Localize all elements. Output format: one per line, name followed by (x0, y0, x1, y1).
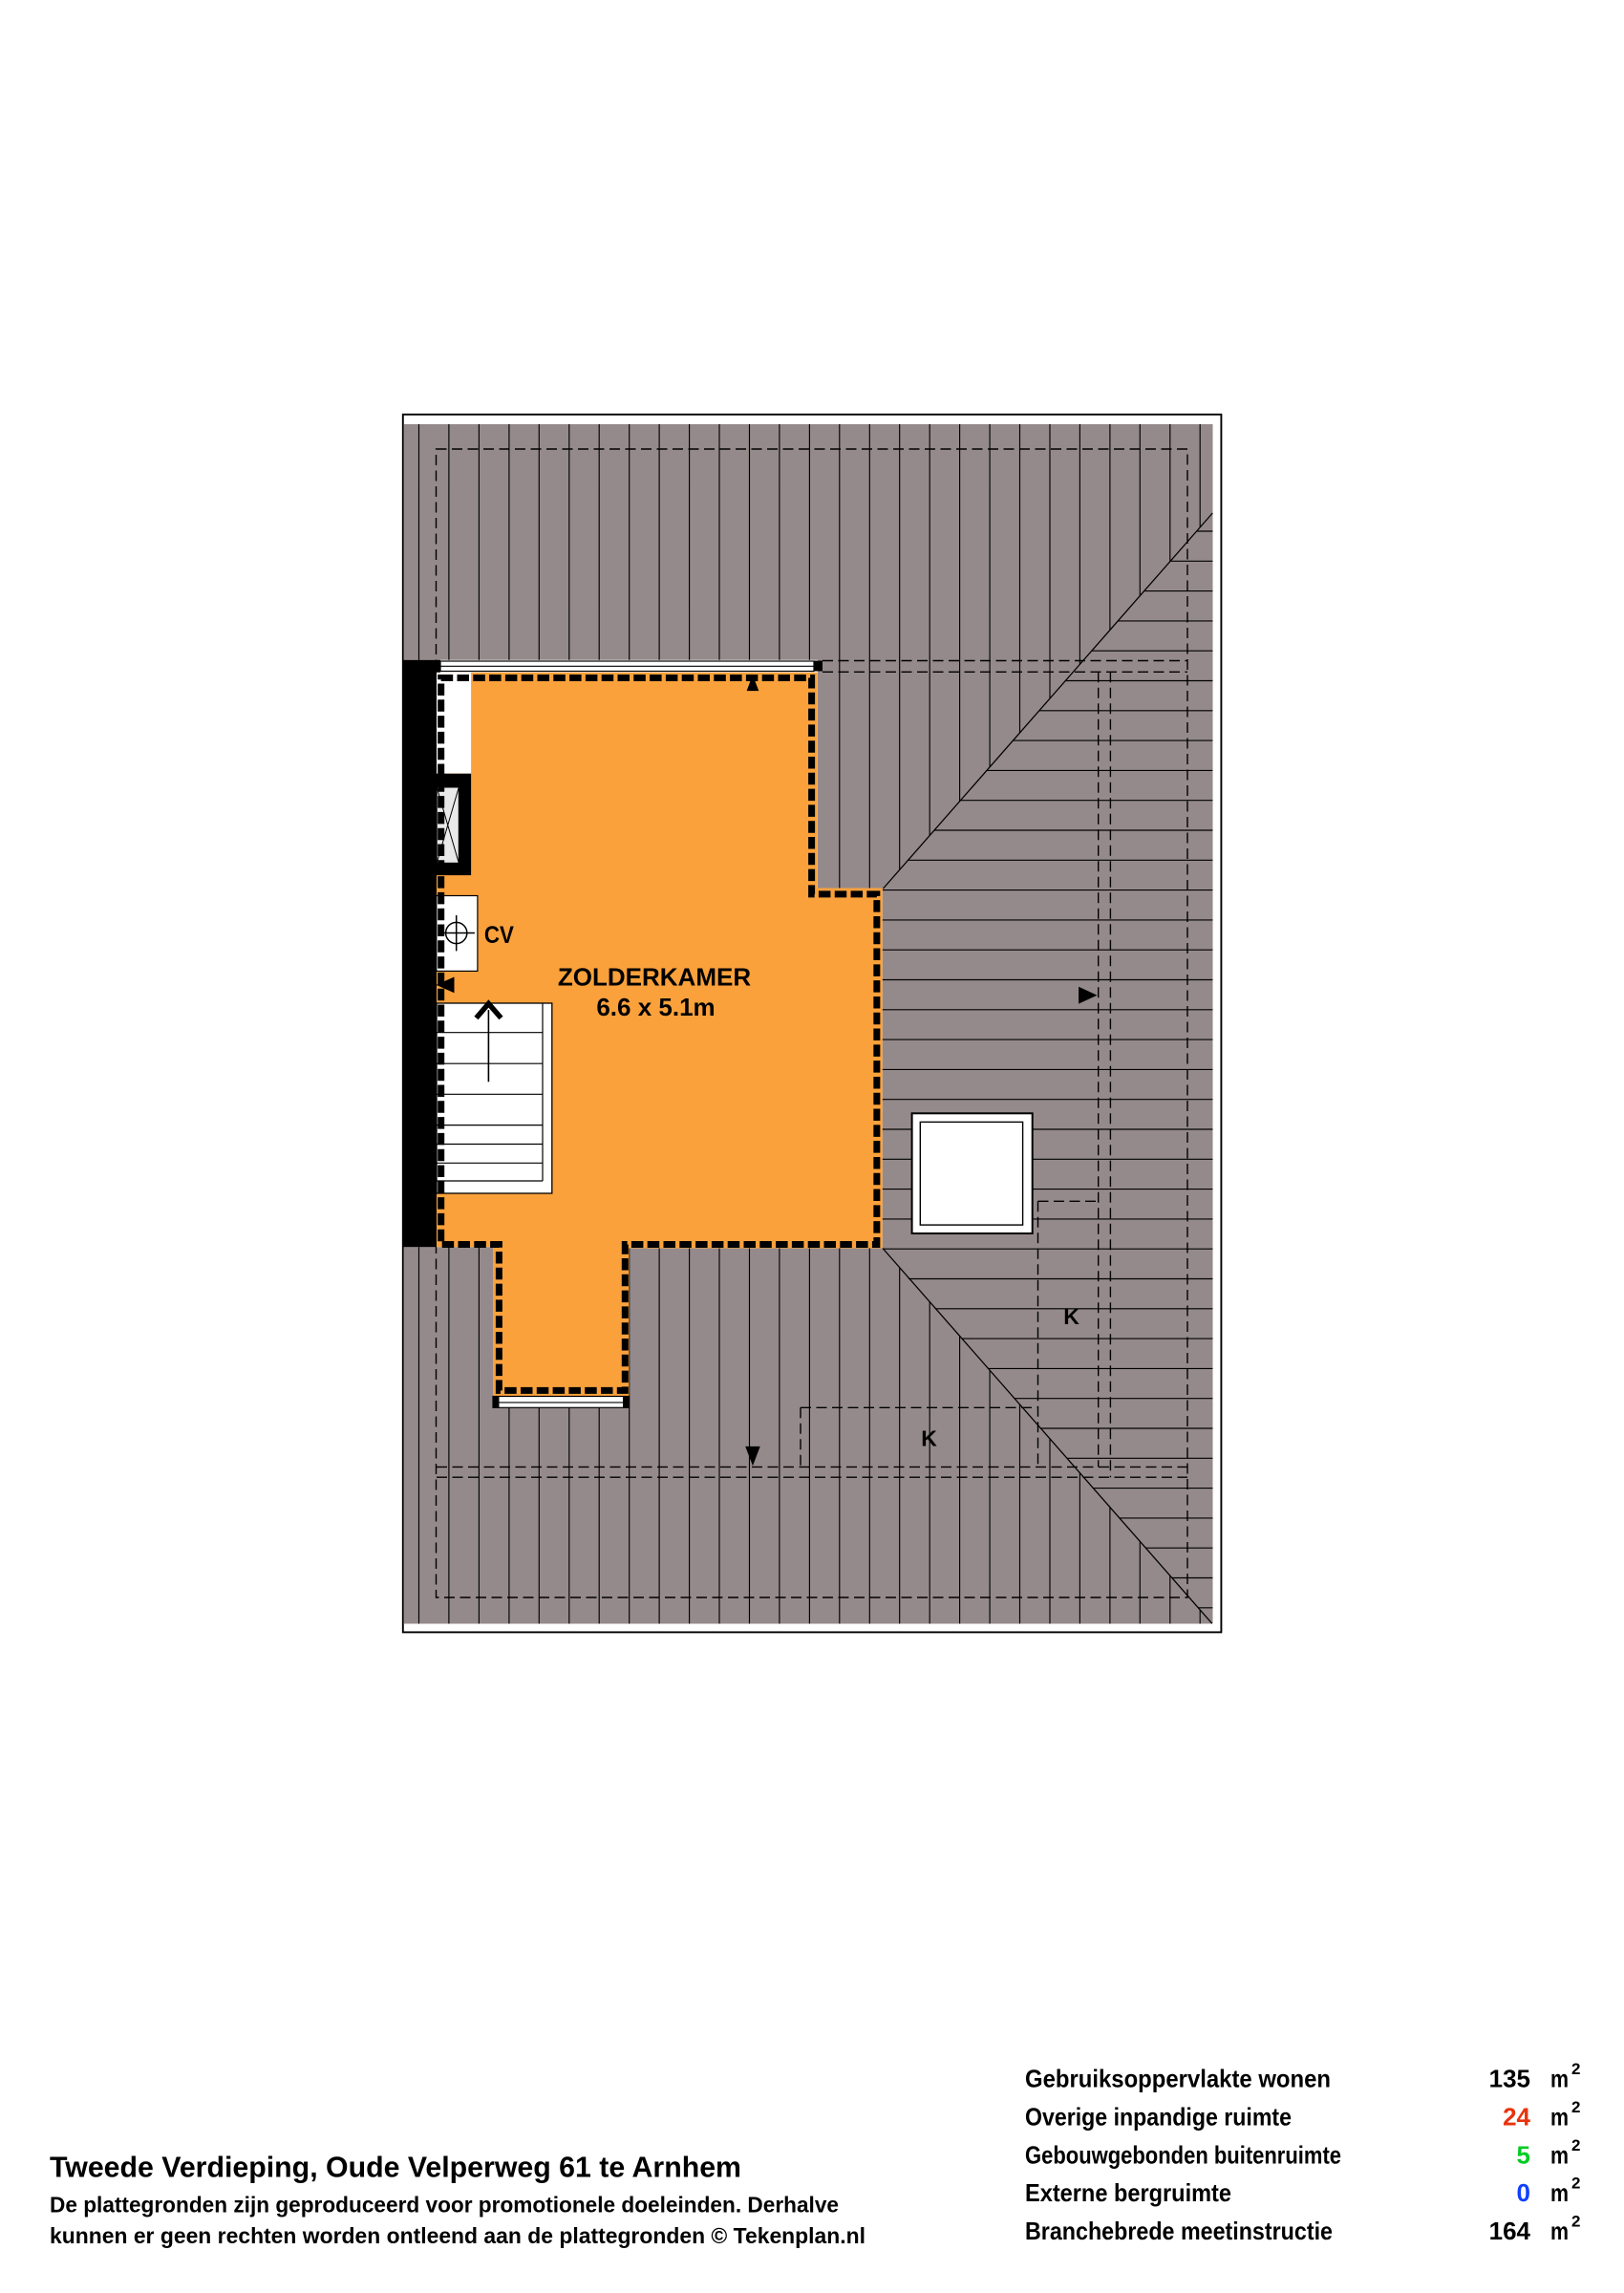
svg-text:m: m (1550, 2217, 1569, 2245)
svg-text:2: 2 (1571, 2212, 1580, 2230)
svg-text:m: m (1550, 2140, 1569, 2169)
svg-text:Externe bergruimte: Externe bergruimte (1025, 2178, 1231, 2207)
svg-text:m: m (1550, 2103, 1569, 2132)
svg-text:ZOLDERKAMER: ZOLDERKAMER (558, 963, 751, 992)
svg-text:m: m (1550, 2065, 1569, 2093)
svg-text:24: 24 (1503, 2103, 1530, 2132)
svg-text:2: 2 (1571, 2175, 1580, 2193)
svg-text:164: 164 (1489, 2217, 1531, 2245)
svg-text:K: K (1063, 1304, 1079, 1329)
svg-text:Tweede Verdieping, Oude Velper: Tweede Verdieping, Oude Velperweg 61 te … (50, 2150, 741, 2183)
svg-text:De plattegronden zijn geproduc: De plattegronden zijn geproduceerd voor … (50, 2193, 839, 2218)
svg-text:Branchebrede meetinstructie: Branchebrede meetinstructie (1025, 2217, 1333, 2245)
svg-text:2: 2 (1571, 2136, 1580, 2154)
svg-text:0: 0 (1517, 2178, 1530, 2207)
svg-text:135: 135 (1489, 2065, 1530, 2093)
svg-text:K: K (921, 1426, 937, 1451)
svg-text:Gebruiksoppervlakte wonen: Gebruiksoppervlakte wonen (1025, 2065, 1331, 2093)
svg-text:kunnen er geen rechten worden: kunnen er geen rechten worden ontleend a… (50, 2223, 865, 2248)
svg-text:m: m (1550, 2178, 1569, 2207)
svg-text:5: 5 (1517, 2140, 1530, 2169)
svg-text:2: 2 (1571, 2060, 1580, 2078)
svg-text:2: 2 (1571, 2098, 1580, 2116)
svg-text:Overige inpandige ruimte: Overige inpandige ruimte (1025, 2103, 1292, 2132)
svg-text:CV: CV (484, 922, 514, 949)
svg-text:Gebouwgebonden buitenruimte: Gebouwgebonden buitenruimte (1025, 2140, 1341, 2169)
svg-text:6.6 x 5.1m: 6.6 x 5.1m (596, 993, 715, 1021)
